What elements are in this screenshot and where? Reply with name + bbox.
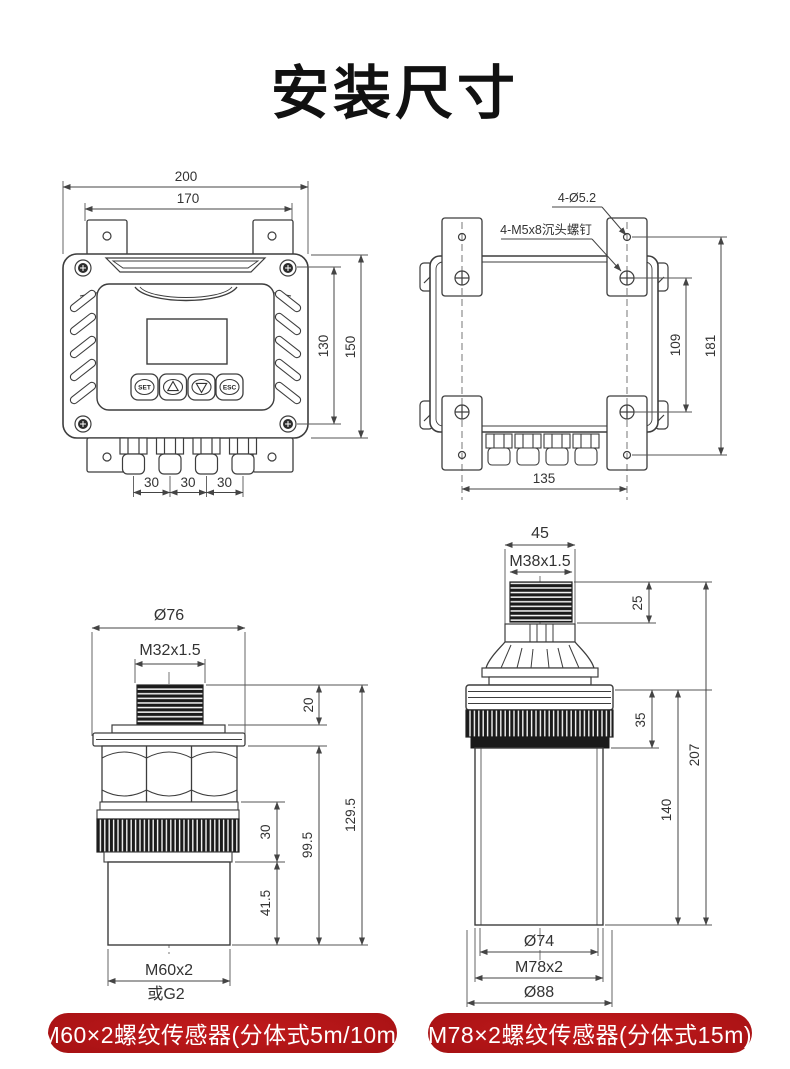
strap-screw (455, 271, 469, 285)
controller-back-drawing: 4-Ø5.2 4-M5x8沉头螺钉 109 181 135 (420, 191, 727, 500)
mount-tab (253, 438, 293, 472)
cable-glands (120, 438, 257, 474)
dim-m78-label: M78x2 (515, 959, 563, 976)
top-thread (137, 685, 203, 725)
dim-m32-label: M32x1.5 (139, 642, 200, 659)
set-button-label: SET (138, 385, 151, 392)
dim-m38-label: M38x1.5 (509, 553, 570, 570)
dim-170-label: 170 (177, 191, 200, 206)
cable-glands-back (486, 434, 599, 465)
sensor-m60-drawing: Ø76 M32x1.5 (92, 607, 368, 1003)
strap-screw (620, 405, 634, 419)
technical-drawings: 200 170 (0, 0, 790, 1069)
lcd-display (147, 319, 227, 364)
strap-screw (455, 405, 469, 419)
sensor-body (108, 862, 230, 945)
dim-30-label: 30 (217, 475, 232, 490)
dim-d74-label: Ø74 (524, 933, 554, 950)
mount-tab (253, 220, 293, 255)
sensor-m78-drawing: 45 M38x1.5 (466, 525, 712, 1007)
dim-140-label: 140 (659, 799, 674, 822)
dim-30r-label: 30 (258, 824, 273, 839)
controller-front-drawing: 200 170 (63, 169, 368, 497)
dim-30-label: 30 (144, 475, 159, 490)
m60-sensor-button[interactable]: M60×2螺纹传感器(分体式5m/10m) (48, 1013, 397, 1053)
dim-109-label: 109 (668, 334, 683, 357)
dim-41-label: 41.5 (258, 890, 273, 916)
screws-note-label: 4-M5x8沉头螺钉 (500, 223, 592, 237)
dim-45-label: 45 (531, 525, 549, 542)
black-ring (471, 737, 609, 748)
dim-d76-label: Ø76 (154, 607, 184, 624)
dim-99-label: 99.5 (300, 832, 315, 858)
mount-tab (87, 220, 127, 255)
m78-sensor-button[interactable]: M78×2螺纹传感器(分体式15m) (428, 1013, 752, 1053)
dim-m60-label: M60x2 (145, 962, 193, 979)
sensor-body (475, 748, 603, 925)
dim-207-label: 207 (687, 744, 702, 767)
dim-200-label: 200 (175, 169, 198, 184)
esc-button-label: ESC (223, 385, 237, 392)
knurled-ring (466, 710, 613, 737)
top-thread (510, 582, 572, 622)
dim-150-label: 150 (343, 336, 358, 359)
dim-129-label: 129.5 (343, 798, 358, 832)
dim-20-label: 20 (301, 697, 316, 712)
dim-130-label: 130 (316, 335, 331, 358)
dim-35-label: 35 (633, 712, 648, 727)
knurled-ring (97, 819, 239, 852)
holes-note-label: 4-Ø5.2 (558, 191, 596, 205)
page: 安装尺寸 200 170 (0, 0, 790, 1069)
dim-d88-label: Ø88 (524, 984, 554, 1001)
dim-135-label: 135 (533, 471, 556, 486)
dim-181-label: 181 (703, 335, 718, 358)
dim-g2-label: 或G2 (147, 985, 184, 1003)
strap-screw (620, 271, 634, 285)
dim-30-label: 30 (180, 475, 195, 490)
dim-25-label: 25 (630, 595, 645, 610)
hex-nut (102, 746, 237, 802)
